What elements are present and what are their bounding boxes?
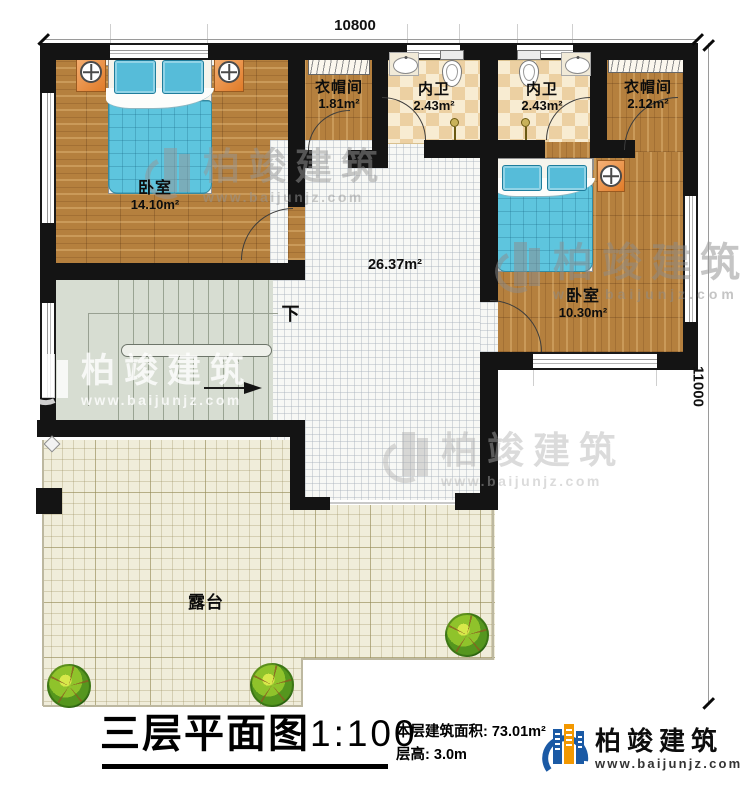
window-reveal	[407, 24, 408, 43]
terrace-column	[36, 488, 62, 514]
bed1-pillow-right	[162, 60, 204, 94]
floor-area-value: 73.01m²	[492, 724, 546, 740]
floor-drain-icon	[450, 118, 459, 127]
floor-area-row: 本层建筑面积: 73.01m²	[396, 721, 546, 744]
floor-drain-icon	[521, 118, 530, 127]
stairs-direction-line	[204, 387, 246, 389]
window-bedroom1-top	[110, 43, 208, 60]
bath2-door-threshold	[545, 142, 590, 158]
dimension-top-value: 10800	[310, 17, 400, 34]
terrace-notch-vertical-edge	[301, 658, 303, 707]
room-name: 卧室	[533, 288, 633, 306]
title-underline	[102, 764, 388, 769]
room-name: 衣帽间	[607, 80, 689, 97]
room-area: 10.30m²	[533, 306, 633, 321]
floor-height-value: 3.0m	[434, 747, 467, 763]
wall-bath-bottom-a	[372, 140, 384, 158]
window-reveal	[110, 24, 111, 43]
bedroom1-label: 卧室 14.10m²	[97, 180, 213, 212]
sink-basin	[565, 57, 590, 74]
bedroom2-label: 卧室 10.30m²	[533, 288, 633, 320]
room-name: 衣帽间	[300, 80, 378, 97]
cloakroom2-label: 衣帽间 2.12m²	[607, 80, 689, 111]
floor-height-label: 层高:	[396, 747, 430, 763]
stairs-handrail	[121, 344, 272, 357]
cloakroom1-label: 衣帽间 1.81m²	[300, 80, 378, 111]
room-area: 1.81m²	[300, 97, 378, 112]
stairs-direction-label: 下	[277, 304, 305, 324]
window-reveal	[656, 370, 657, 386]
toilet-icon	[440, 50, 464, 60]
lamp-icon	[218, 61, 240, 83]
window-bedroom2-right	[683, 196, 698, 322]
room-name: 卧室	[97, 180, 213, 198]
wall-terrace-top	[37, 420, 305, 437]
lamp-icon	[80, 61, 102, 83]
stairs-arrow-icon	[244, 382, 262, 394]
room-name: 内卫	[388, 82, 480, 99]
window-bedroom1-left	[40, 93, 56, 223]
room-area: 2.43m²	[388, 99, 480, 114]
bath1-label: 内卫 2.43m²	[388, 82, 480, 113]
brand-logo-icon	[540, 720, 590, 778]
terrace-right-edge	[492, 505, 494, 660]
floor-drain-stem	[454, 127, 456, 140]
bed2-nightstand	[597, 160, 625, 192]
room-area: 2.12m²	[607, 97, 689, 112]
terrace-threshold-line	[330, 502, 456, 504]
window-bedroom2-bottom	[533, 352, 657, 370]
lamp-icon	[600, 165, 622, 187]
plan-title-text: 三层平面图	[100, 710, 310, 758]
wall-cloakroom1-bottom-b	[348, 150, 372, 168]
window-reveal	[572, 24, 573, 43]
floor-plan-canvas: 柏竣建筑 www.baijunjz.com 柏竣建筑 www.baijunjz.…	[0, 0, 750, 792]
wall-cloakroom1-bottom-a	[290, 150, 312, 168]
plant-icon	[445, 613, 489, 657]
plan-title: 三层平面图 1:100	[100, 710, 418, 758]
window-reveal	[533, 370, 534, 386]
brand-website: www.baijunjz.com	[595, 756, 742, 771]
dimension-line-top	[43, 39, 698, 40]
wall-nub-left	[290, 497, 330, 510]
wall-bedroom1-bottom	[40, 263, 305, 280]
plant-icon	[47, 664, 91, 708]
dimension-right-value: 11000	[690, 352, 707, 422]
floor-area-label: 本层建筑面积:	[396, 724, 488, 740]
room-area: 26.37m²	[340, 257, 450, 273]
window-reveal	[207, 24, 208, 43]
room-name: 内卫	[496, 82, 588, 99]
terrace-left-edge	[42, 440, 44, 706]
plan-stats: 本层建筑面积: 73.01m² 层高: 3.0m	[396, 721, 546, 767]
brand-logo: 柏竣建筑 www.baijunjz.com	[540, 720, 742, 778]
window-reveal	[459, 24, 460, 43]
sink-icon	[389, 52, 419, 76]
terrace-label: 露台	[176, 593, 236, 612]
bath2-label: 内卫 2.43m²	[496, 82, 588, 113]
dimension-line-right	[708, 43, 709, 705]
floor-height-row: 层高: 3.0m	[396, 744, 546, 767]
window-stairs-left	[40, 303, 56, 397]
bed2-pillow-left	[502, 165, 542, 191]
bed2-pillow-right	[547, 165, 587, 191]
brand-name: 柏竣建筑	[595, 727, 742, 756]
terrace-notch-bottom-edge	[301, 658, 494, 660]
bed1-pillow-left	[114, 60, 156, 94]
wall-nub-right	[455, 493, 498, 510]
toilet-icon	[517, 50, 541, 60]
floor-drain-stem	[525, 127, 527, 140]
hall-area-label: 26.37m²	[340, 257, 450, 273]
wall-hall-right	[480, 367, 498, 493]
bed2-blanket	[496, 184, 593, 272]
plant-icon	[250, 663, 294, 707]
window-reveal	[517, 24, 518, 43]
sink-icon	[561, 52, 591, 76]
brand-text: 柏竣建筑 www.baijunjz.com	[595, 727, 742, 771]
sink-basin	[393, 57, 418, 74]
room-area: 14.10m²	[97, 198, 213, 213]
wall-bath2-right	[590, 43, 607, 158]
room-area: 2.43m²	[496, 99, 588, 114]
room-name: 露台	[176, 593, 236, 612]
